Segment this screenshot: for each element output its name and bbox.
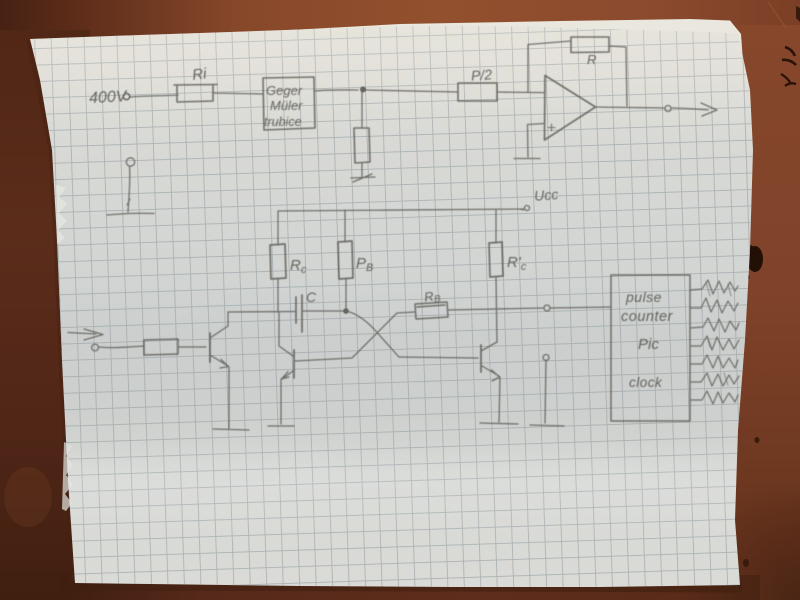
svg-text:counter: counter [621, 309, 674, 325]
svg-text:pulse: pulse [625, 289, 662, 305]
svg-text:clock: clock [629, 375, 663, 390]
svg-text:Ri: Ri [191, 65, 208, 84]
svg-text:Pic: Pic [638, 336, 659, 353]
svg-text:400V: 400V [89, 88, 129, 107]
svg-text:Geger: Geger [266, 83, 303, 98]
svg-text:Ucc: Ucc [534, 186, 559, 204]
svg-text:trubice: trubice [264, 115, 302, 129]
svg-text:Müler: Müler [270, 98, 303, 113]
svg-text:R: R [587, 52, 596, 67]
svg-text:C: C [306, 289, 317, 305]
svg-text:P/2: P/2 [470, 66, 492, 83]
